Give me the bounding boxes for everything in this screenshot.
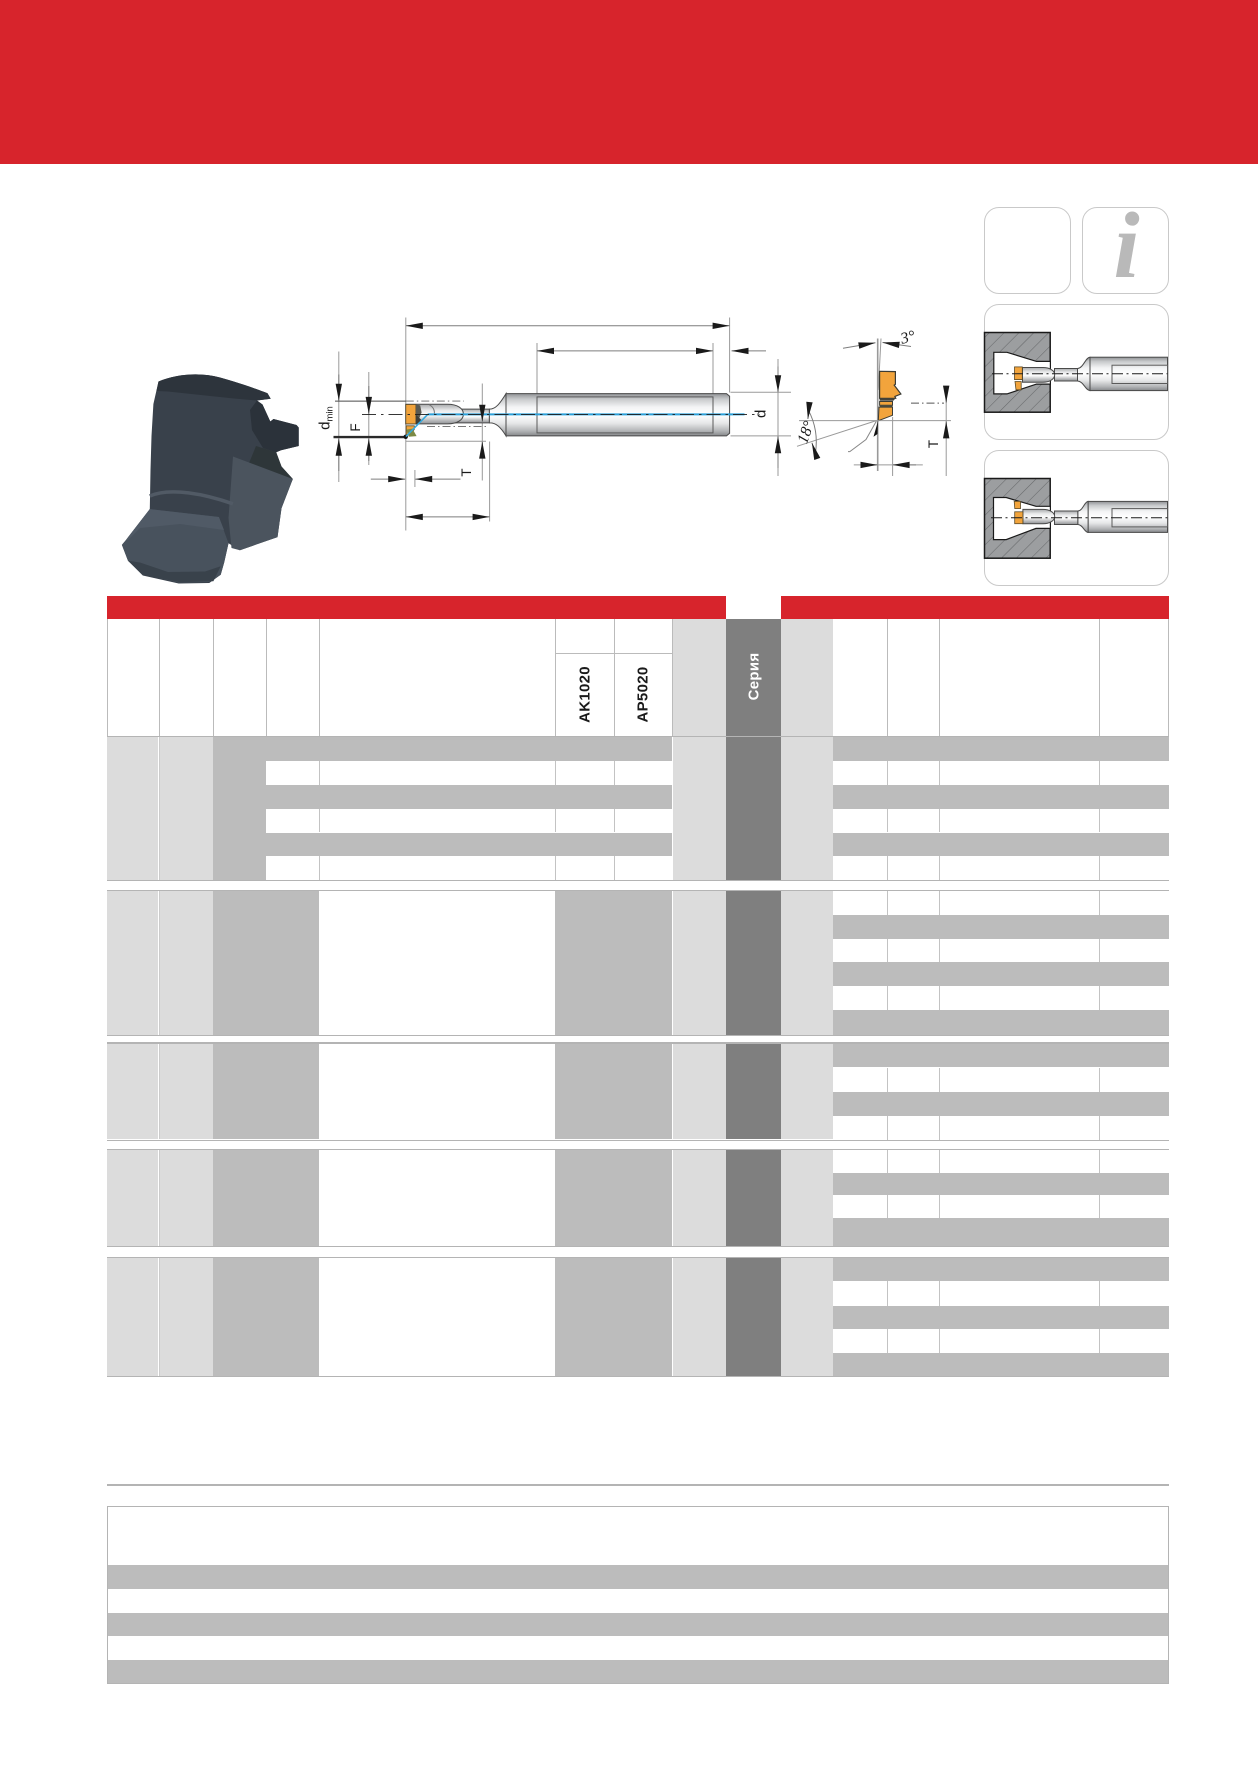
svg-text:T: T <box>926 440 941 448</box>
svg-text:d: d <box>753 410 770 418</box>
svg-text:dmin: dmin <box>317 406 336 430</box>
svg-text:T: T <box>459 468 474 476</box>
svg-text:F: F <box>348 423 363 431</box>
svg-text:18°: 18° <box>794 418 818 445</box>
